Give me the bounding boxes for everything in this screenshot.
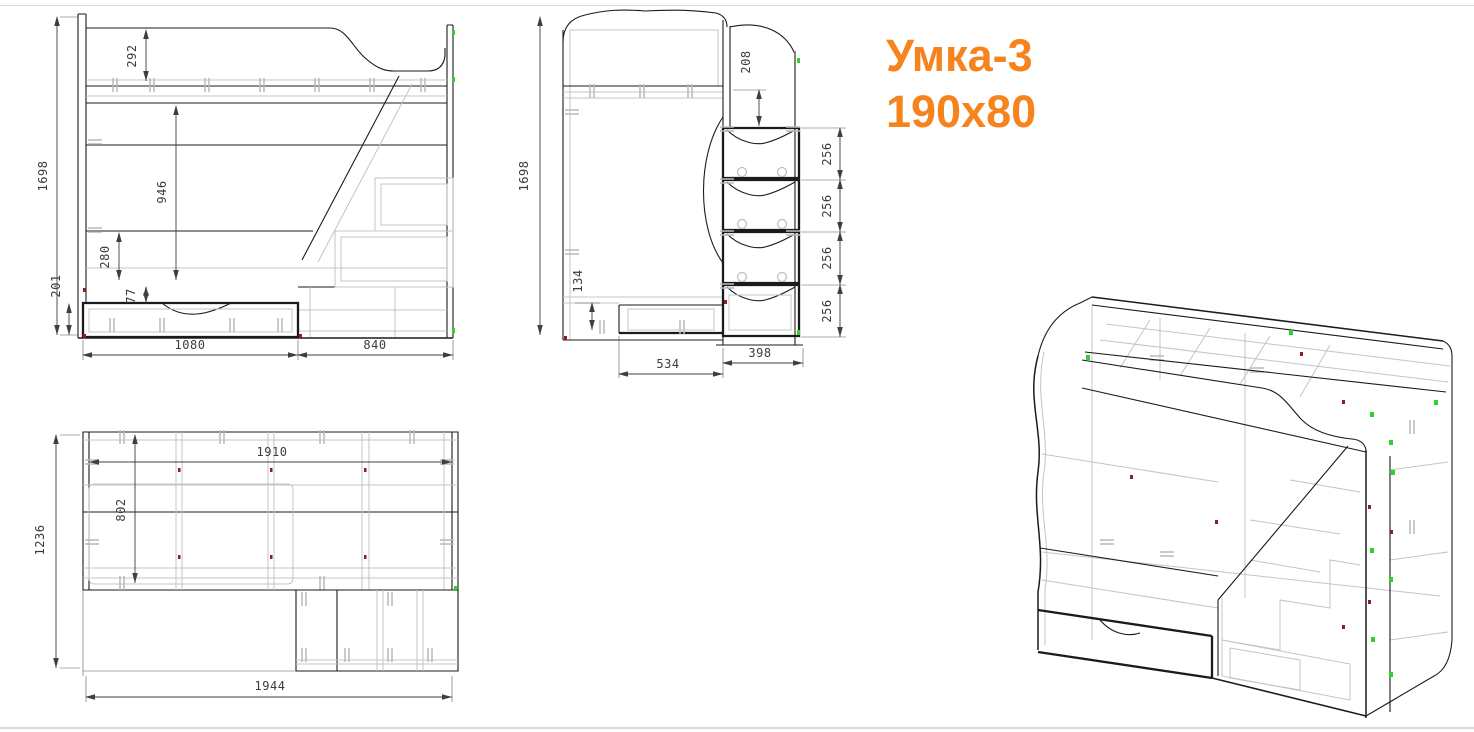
dim-side-body-depth: 534 (656, 357, 679, 371)
dim-side-drawer4: 256 (820, 299, 834, 322)
dim-side-drawer3: 256 (820, 246, 834, 269)
dim-plan-inner-depth: 802 (114, 498, 128, 521)
dim-side-stairs-depth: 398 (748, 346, 771, 360)
plan-view-drawing: 1236 1910 802 1944 (33, 430, 458, 702)
dim-plan-total-length: 1944 (255, 679, 286, 693)
dim-front-stairs-width: 840 (363, 338, 386, 352)
dim-side-drawer1: 256 (820, 142, 834, 165)
dim-plan-total-depth: 1236 (33, 525, 47, 556)
blueprint-sheet: { "title": { "line1": "Умка-3", "line2":… (0, 0, 1474, 732)
dim-front-total-height: 1698 (36, 161, 50, 192)
side-view-drawing: 1698 208 256 256 256 256 134 534 398 (517, 10, 846, 378)
dim-side-total-height: 1698 (517, 161, 531, 192)
dim-front-bed-width: 1080 (175, 338, 206, 352)
technical-drawing: 1698 292 946 280 201 77 1080 840 (0, 0, 1474, 732)
dim-plan-inner-length: 1910 (257, 445, 288, 459)
dim-side-rail-to-drawers: 208 (739, 50, 753, 73)
front-view-drawing: 1698 292 946 280 201 77 1080 840 (36, 14, 455, 360)
dim-front-rail-height: 292 (125, 44, 139, 67)
isometric-view-drawing (1034, 297, 1452, 718)
dim-front-under-bed: 946 (155, 180, 169, 203)
side-drawer-stack (723, 128, 799, 336)
dim-side-kick-height: 134 (571, 269, 585, 292)
dim-side-drawer2: 256 (820, 194, 834, 217)
dim-front-shelf-gap: 280 (98, 245, 112, 268)
dim-front-drawer-gap: 77 (124, 288, 138, 303)
dim-front-base-height: 201 (49, 274, 63, 297)
